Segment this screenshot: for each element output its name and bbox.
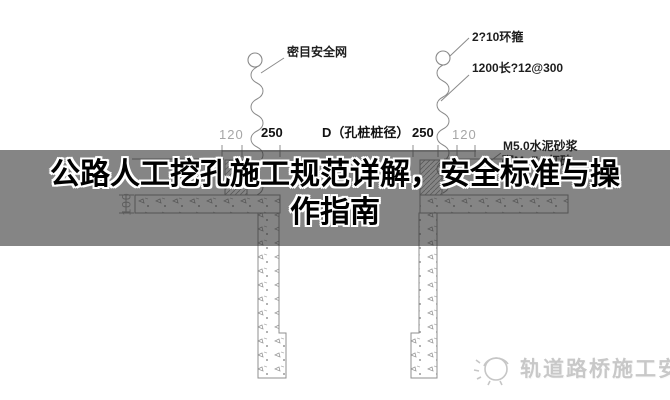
leader-tie-bar [441, 75, 469, 101]
article-title: 公路人工挖孔施工规范详解，安全标准与操作指南 [0, 156, 670, 232]
dim-250-left: 250 [261, 126, 283, 139]
safety-net-label: 密目安全网 [287, 46, 347, 59]
dim-120-right: 120 [452, 128, 477, 141]
leader-hoop [450, 38, 469, 56]
tie-bar-label: 1200长?12@300 [472, 62, 563, 75]
dim-pile-diameter: D（孔桩桩径） [322, 126, 409, 139]
cover-image: 密目安全网 2?10环箍 1200长?12@300 M5.0水泥砂浆 砌Mu7.… [0, 0, 670, 400]
left-post-ring [248, 53, 262, 67]
dim-120-left: 120 [219, 128, 244, 141]
right-post-ring [436, 51, 450, 65]
watermark: 轨道路桥施工安全 [472, 348, 670, 388]
leader-safety-net [261, 58, 284, 73]
dim-250-right: 250 [412, 126, 434, 139]
watermark-text: 轨道路桥施工安全 [520, 353, 670, 383]
hoop-label: 2?10环箍 [472, 31, 523, 44]
mascot-icon [472, 348, 514, 388]
